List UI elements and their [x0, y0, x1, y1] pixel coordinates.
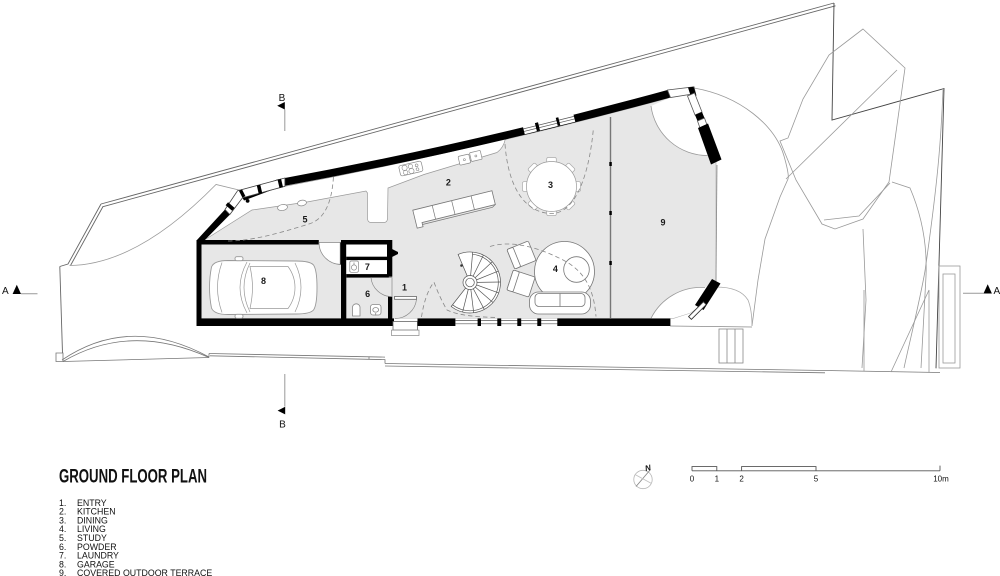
svg-text:1: 1 — [715, 475, 720, 484]
svg-text:6: 6 — [365, 289, 370, 299]
svg-text:A: A — [994, 286, 1000, 297]
svg-text:B: B — [279, 420, 286, 431]
svg-text:7: 7 — [365, 262, 370, 272]
svg-text:GROUND FLOOR PLAN: GROUND FLOOR PLAN — [59, 466, 207, 488]
svg-text:COVERED OUTDOOR TERRACE: COVERED OUTDOOR TERRACE — [77, 568, 212, 576]
svg-text:10m: 10m — [933, 475, 949, 484]
svg-text:5: 5 — [814, 475, 819, 484]
svg-text:9.: 9. — [59, 568, 66, 576]
svg-text:0: 0 — [690, 475, 695, 484]
svg-text:5: 5 — [302, 215, 307, 225]
svg-text:A: A — [2, 286, 9, 297]
svg-text:3: 3 — [548, 180, 553, 190]
svg-text:2: 2 — [739, 475, 744, 484]
svg-text:9: 9 — [660, 218, 665, 228]
svg-text:4: 4 — [553, 264, 558, 274]
svg-text:8: 8 — [261, 276, 266, 286]
svg-text:1: 1 — [402, 282, 407, 292]
svg-text:2: 2 — [446, 178, 451, 188]
